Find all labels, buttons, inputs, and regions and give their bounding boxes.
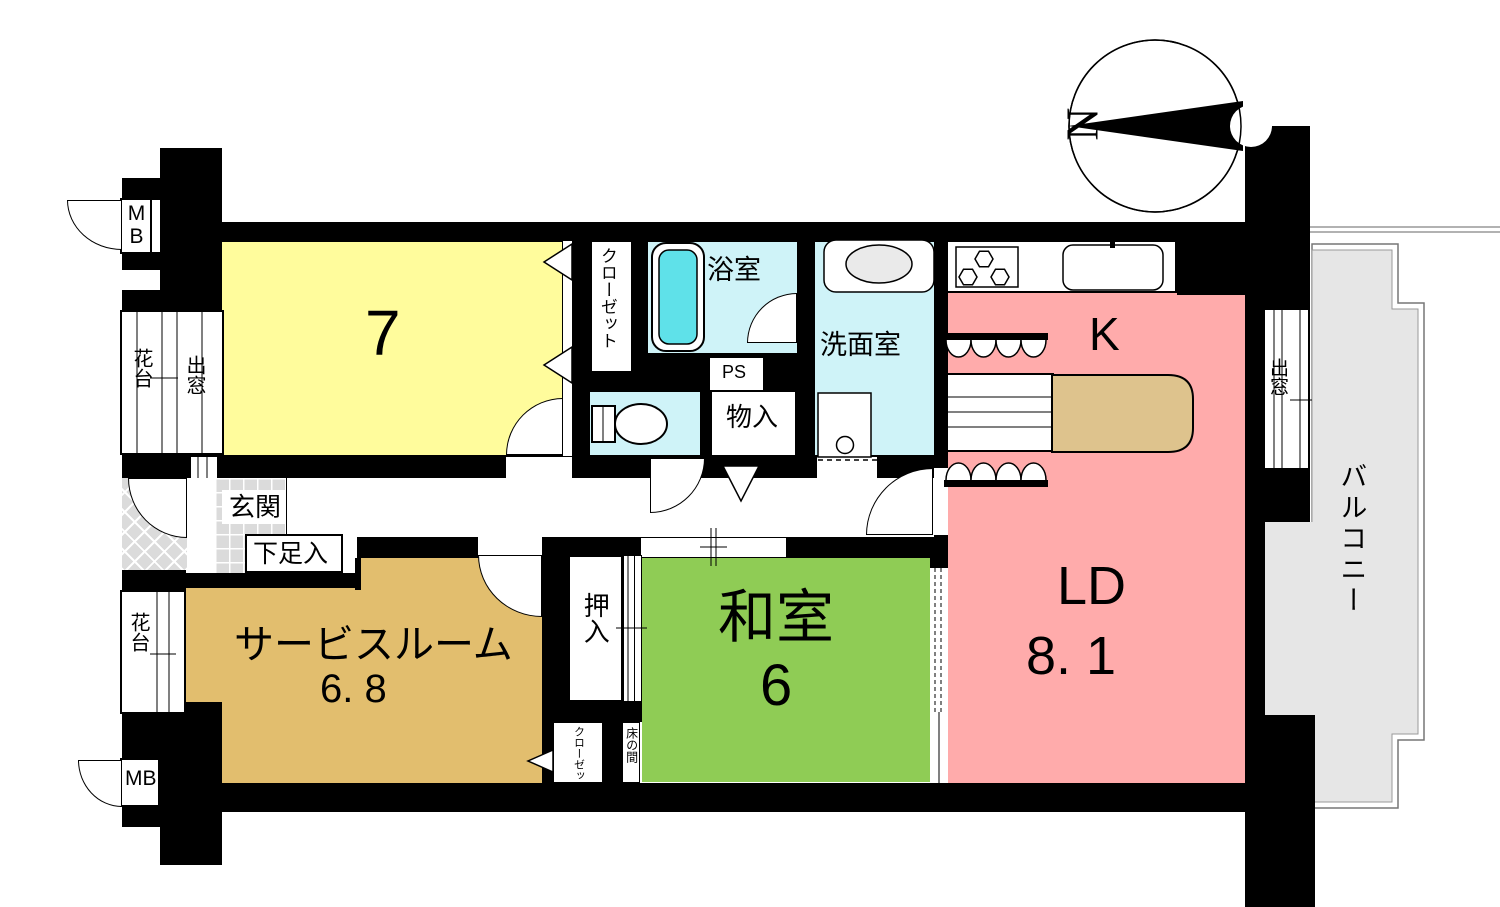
label-service-room-size: 6. 8	[320, 668, 387, 710]
label-flower-stand-bottom: 花台	[127, 612, 148, 652]
label-bay-window-right: 出窓	[1267, 358, 1287, 396]
label-tokonoma: 床の間	[625, 727, 638, 763]
stove-icon	[956, 247, 1018, 287]
closet-folding-door-icon	[528, 244, 572, 772]
label-pipe-space: PS	[722, 363, 746, 382]
label-shoe-cabinet: 下足入	[253, 541, 328, 567]
label-living-dining-size: 8. 1	[1026, 628, 1116, 685]
label-balcony: バルコニー	[1337, 462, 1365, 617]
label-bay-window-left: 出窓	[183, 355, 204, 395]
label-meter-box-bottom: MB	[125, 768, 157, 790]
label-service-room: サービスルーム	[234, 624, 513, 666]
label-entrance: 玄関	[229, 494, 281, 521]
label-north: N	[1058, 108, 1106, 141]
washing-machine-icon	[818, 393, 877, 460]
label-flower-stand-top: 花台	[130, 348, 151, 388]
label-closet-bottom: クローゼット	[572, 726, 584, 792]
label-kitchen: K	[1089, 310, 1120, 358]
label-oshiire: 押入	[581, 592, 608, 644]
hatch-panel-lines	[948, 397, 1052, 427]
label-bedroom7: 7	[365, 300, 401, 367]
floor-plan: 7 クローゼット 浴室 PS 物入 洗面室 K LD 8. 1 和室 6 サービ…	[0, 0, 1500, 907]
fixtures-layer	[0, 0, 1500, 907]
label-washroom: 洗面室	[820, 331, 901, 359]
bathtub-icon	[652, 243, 704, 351]
folding-door-v-icon	[723, 466, 759, 501]
label-closet-top: クローゼット	[598, 247, 616, 369]
label-japanese-room: 和室	[718, 588, 834, 649]
sliding-door-lines	[616, 528, 727, 702]
washitsu-ld-track	[935, 568, 941, 783]
wash-basin-icon	[824, 240, 934, 292]
dining-table-icon	[1052, 375, 1193, 452]
kitchen-sink-icon	[1063, 226, 1163, 290]
accordion-door-icon	[944, 333, 1048, 487]
window-pane-lines-lower-left	[150, 592, 176, 712]
toilet-icon	[592, 404, 667, 444]
label-japanese-room-size: 6	[760, 656, 792, 717]
label-meter-box-top: MB	[125, 202, 147, 248]
entrance-frame-lines	[198, 457, 207, 478]
label-living-dining: LD	[1057, 558, 1126, 615]
label-storage: 物入	[726, 404, 778, 431]
label-bath: 浴室	[707, 256, 761, 284]
